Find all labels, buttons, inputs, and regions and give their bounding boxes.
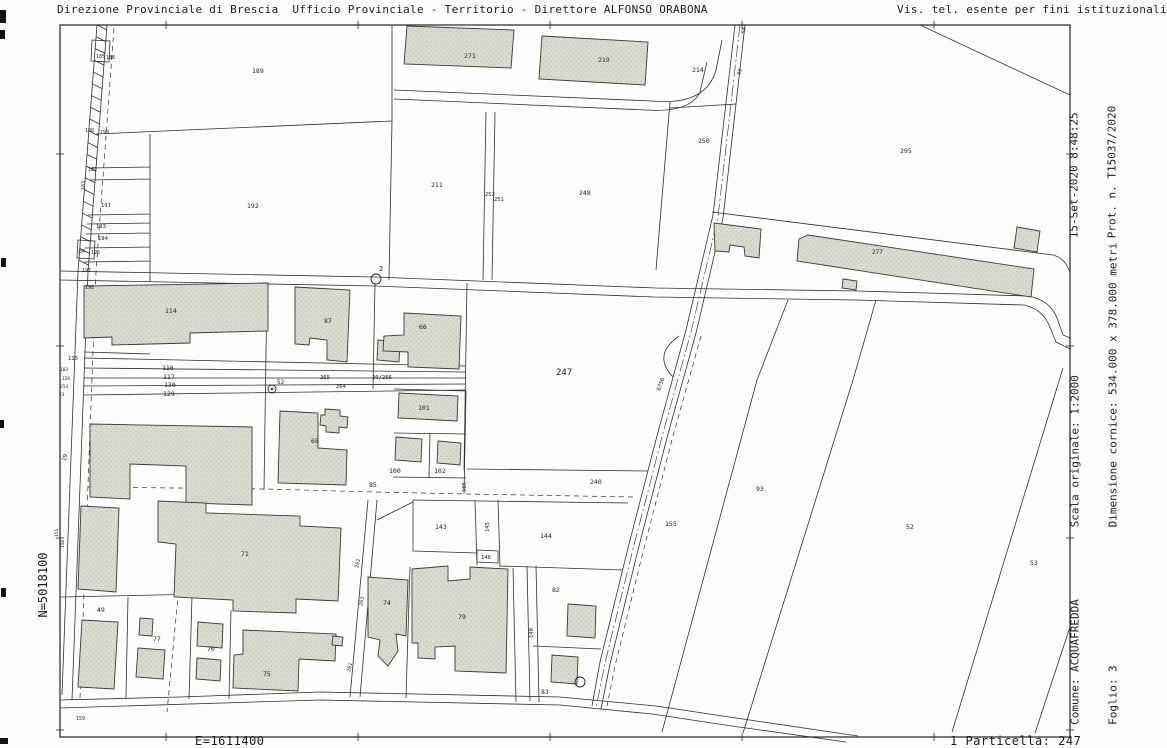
building-footprint bbox=[295, 287, 350, 362]
parcel-label: 240 bbox=[590, 478, 602, 486]
parcel-label: 194 bbox=[98, 236, 109, 242]
header-disclaimer: Vis. tel. esente per fini istituzionali bbox=[897, 3, 1167, 16]
boundary-line bbox=[662, 300, 1070, 733]
dashed-boundary-line bbox=[88, 487, 633, 497]
parcel-label: 191 bbox=[101, 203, 111, 209]
building-footprint bbox=[78, 620, 118, 689]
building-footprint bbox=[139, 618, 153, 636]
comune-line: Comune: ACQUAFREDDA bbox=[1069, 599, 1082, 725]
boundary-line bbox=[533, 646, 601, 649]
parcel-label: 85 bbox=[369, 481, 377, 489]
cadastral-map-scan: { "header": { "left": "Direzione Provinc… bbox=[0, 0, 1167, 748]
parcel-label: 20/266 bbox=[372, 375, 392, 381]
parcel-label: 49 bbox=[97, 606, 105, 614]
parcel-label: 264 bbox=[336, 384, 347, 390]
easting-coordinate: E=1611400 bbox=[195, 734, 265, 748]
parcel-label: 195 bbox=[91, 250, 100, 256]
parcel-label: 75 bbox=[263, 670, 271, 678]
parcel-label: 159 bbox=[76, 716, 85, 722]
building-footprint bbox=[136, 648, 165, 679]
parcel-label: 155 bbox=[665, 520, 677, 528]
survey-point-icon bbox=[268, 385, 276, 393]
northing-value: N=5018100 bbox=[37, 552, 50, 617]
building-footprint bbox=[90, 424, 252, 505]
parcel-label: 100 bbox=[389, 467, 401, 475]
parcel-label: 265 bbox=[320, 375, 330, 381]
parcel-label: 60 bbox=[740, 27, 748, 35]
parcel-label: 295 bbox=[900, 147, 912, 155]
parcel-label: 247 bbox=[556, 368, 572, 378]
parcel-label: 71 bbox=[241, 550, 249, 558]
building-footprint bbox=[320, 409, 348, 433]
building-footprint bbox=[551, 655, 578, 684]
parcel-label: 261 bbox=[346, 662, 354, 672]
parcel-number-labels: 1892712192142502952112482522511922114876… bbox=[54, 27, 1038, 722]
parcel-label: 271 bbox=[464, 52, 476, 60]
parcel-label: 66 bbox=[419, 323, 427, 331]
parcel-label: 219 bbox=[598, 56, 610, 64]
parcel-label: 248 bbox=[579, 189, 591, 197]
parcel-label: 74 bbox=[383, 599, 391, 607]
original-scale-line: Scala originale: 1:2000 bbox=[1069, 243, 1082, 528]
building-footprint bbox=[196, 658, 221, 681]
parcel-label: 145 bbox=[485, 522, 491, 532]
parcel-label: 130 bbox=[164, 381, 176, 389]
particella-reference: 1 Particella: 247 bbox=[950, 734, 1081, 748]
parcel-label: 192 bbox=[247, 202, 259, 210]
parcel-label: 144 bbox=[540, 532, 552, 540]
header-office-title: Direzione Provinciale di Brescia Ufficio… bbox=[57, 3, 708, 16]
parcel-label: 146 bbox=[481, 555, 491, 561]
parcel-label: 198 bbox=[85, 285, 94, 291]
parcel-label: 251 bbox=[494, 197, 504, 203]
parcel-label: 83 bbox=[541, 688, 549, 696]
scan-artifacts bbox=[0, 10, 8, 744]
boundary-line bbox=[467, 469, 648, 471]
road-line bbox=[60, 692, 858, 742]
parcel-label: 117 bbox=[163, 373, 175, 381]
scale-annotation: Scala originale: 1:2000 Dimensione corni… bbox=[1044, 243, 1132, 528]
parcel-label: 129 bbox=[163, 390, 175, 398]
building-footprint bbox=[437, 441, 461, 465]
parcel-label: 183 bbox=[81, 181, 87, 190]
parcel-label: 182 bbox=[88, 167, 97, 173]
parcel-label: 52 bbox=[906, 523, 914, 531]
comune-annotation: Comune: ACQUAFREDDA Foglio: 3 bbox=[1044, 599, 1132, 725]
parcel-label: 126 bbox=[62, 376, 70, 382]
parcel-label: 82 bbox=[552, 586, 560, 594]
parcel-label: 103 bbox=[60, 367, 68, 373]
parcel-label: 115 bbox=[68, 356, 78, 362]
parcel-label: 140 bbox=[529, 628, 535, 638]
parcel-label: 2 bbox=[379, 265, 383, 273]
survey-point-dot bbox=[271, 388, 273, 390]
parcel-label: 23 bbox=[59, 392, 65, 398]
boundary-line bbox=[96, 25, 392, 280]
building-footprint bbox=[332, 636, 343, 646]
building-footprint bbox=[368, 577, 408, 666]
parcel-label: 254 bbox=[60, 384, 68, 390]
northing-coordinate: N=5018100 bbox=[12, 552, 62, 617]
parcel-label: 60 bbox=[736, 68, 744, 76]
parcel-label: 189 bbox=[252, 67, 264, 75]
building-footprint bbox=[539, 36, 648, 85]
road-line bbox=[592, 25, 745, 709]
building-footprint bbox=[158, 501, 341, 613]
building-footprint bbox=[404, 26, 514, 68]
parcel-label: 52 bbox=[277, 379, 285, 386]
railway-road-line bbox=[62, 25, 107, 700]
survey-point-icon bbox=[371, 274, 381, 284]
parcel-label: 84 bbox=[79, 249, 85, 255]
parcel-label: 93 bbox=[756, 485, 764, 493]
parcel-label: 87 bbox=[324, 317, 332, 325]
parcel-label: 151 bbox=[54, 529, 60, 537]
building-footprint bbox=[78, 506, 119, 592]
parcel-label: 190 bbox=[100, 130, 109, 136]
parcel-label: 193 bbox=[96, 224, 106, 230]
boundary-line bbox=[664, 336, 679, 377]
building-footprint bbox=[1014, 227, 1040, 252]
protocol-date-line: 15-Set-2020 8:48:25 bbox=[1068, 106, 1081, 238]
protocol-date-annotation: 15-Set-2020 8:48:25 Prot. n. T15037/2020 bbox=[1043, 106, 1131, 238]
boundary-line bbox=[920, 25, 1070, 95]
parcel-label: 29 bbox=[62, 454, 69, 462]
parcel-label: 197 bbox=[82, 268, 91, 274]
parcel-label: 262 bbox=[354, 558, 362, 568]
parcel-label: 150 bbox=[60, 540, 66, 548]
building-footprint bbox=[797, 235, 1034, 297]
building-footprint bbox=[233, 630, 336, 691]
parcel-label: 77 bbox=[153, 635, 161, 643]
parcel-label: 214 bbox=[692, 66, 704, 74]
parcel-label: 277 bbox=[872, 249, 883, 256]
building-footprint bbox=[714, 223, 761, 258]
protocol-number-line: Prot. n. T15037/2020 bbox=[1106, 106, 1119, 238]
building-footprint bbox=[842, 279, 857, 290]
parcel-label: 100 bbox=[85, 128, 94, 134]
parcel-label: 105 bbox=[462, 482, 468, 492]
parcel-label: 211 bbox=[431, 181, 443, 189]
foglio-line: Foglio: 3 bbox=[1107, 599, 1120, 725]
parcel-label: 185 bbox=[96, 54, 105, 60]
parcel-label: 70 bbox=[207, 645, 215, 653]
cadastral-map: 1892712192142502952112482522511922114876… bbox=[0, 0, 1167, 748]
frame-size-line: Dimensione cornice: 534.000 x 378.000 me… bbox=[1107, 243, 1120, 528]
parcel-label: 53 bbox=[1030, 559, 1038, 567]
parcel-label: 188 bbox=[106, 55, 115, 61]
parcel-label: 114 bbox=[165, 307, 177, 315]
parcel-label: 102 bbox=[434, 467, 446, 475]
building-footprint bbox=[395, 437, 422, 462]
building-footprint bbox=[567, 604, 596, 638]
parcel-label: 68 bbox=[311, 437, 319, 445]
boundary-line bbox=[413, 500, 628, 570]
parcel-label: 116 bbox=[162, 364, 174, 372]
parcel-label: 101 bbox=[418, 404, 430, 412]
parcel-label: 79 bbox=[458, 613, 466, 621]
parcel-label: 6756 bbox=[656, 377, 666, 392]
parcel-label: 143 bbox=[435, 523, 447, 531]
parcel-label: 250 bbox=[698, 137, 710, 145]
dashed-boundary-line bbox=[607, 336, 701, 706]
boundary-line bbox=[77, 40, 150, 282]
parcel-label: 263 bbox=[358, 596, 366, 606]
